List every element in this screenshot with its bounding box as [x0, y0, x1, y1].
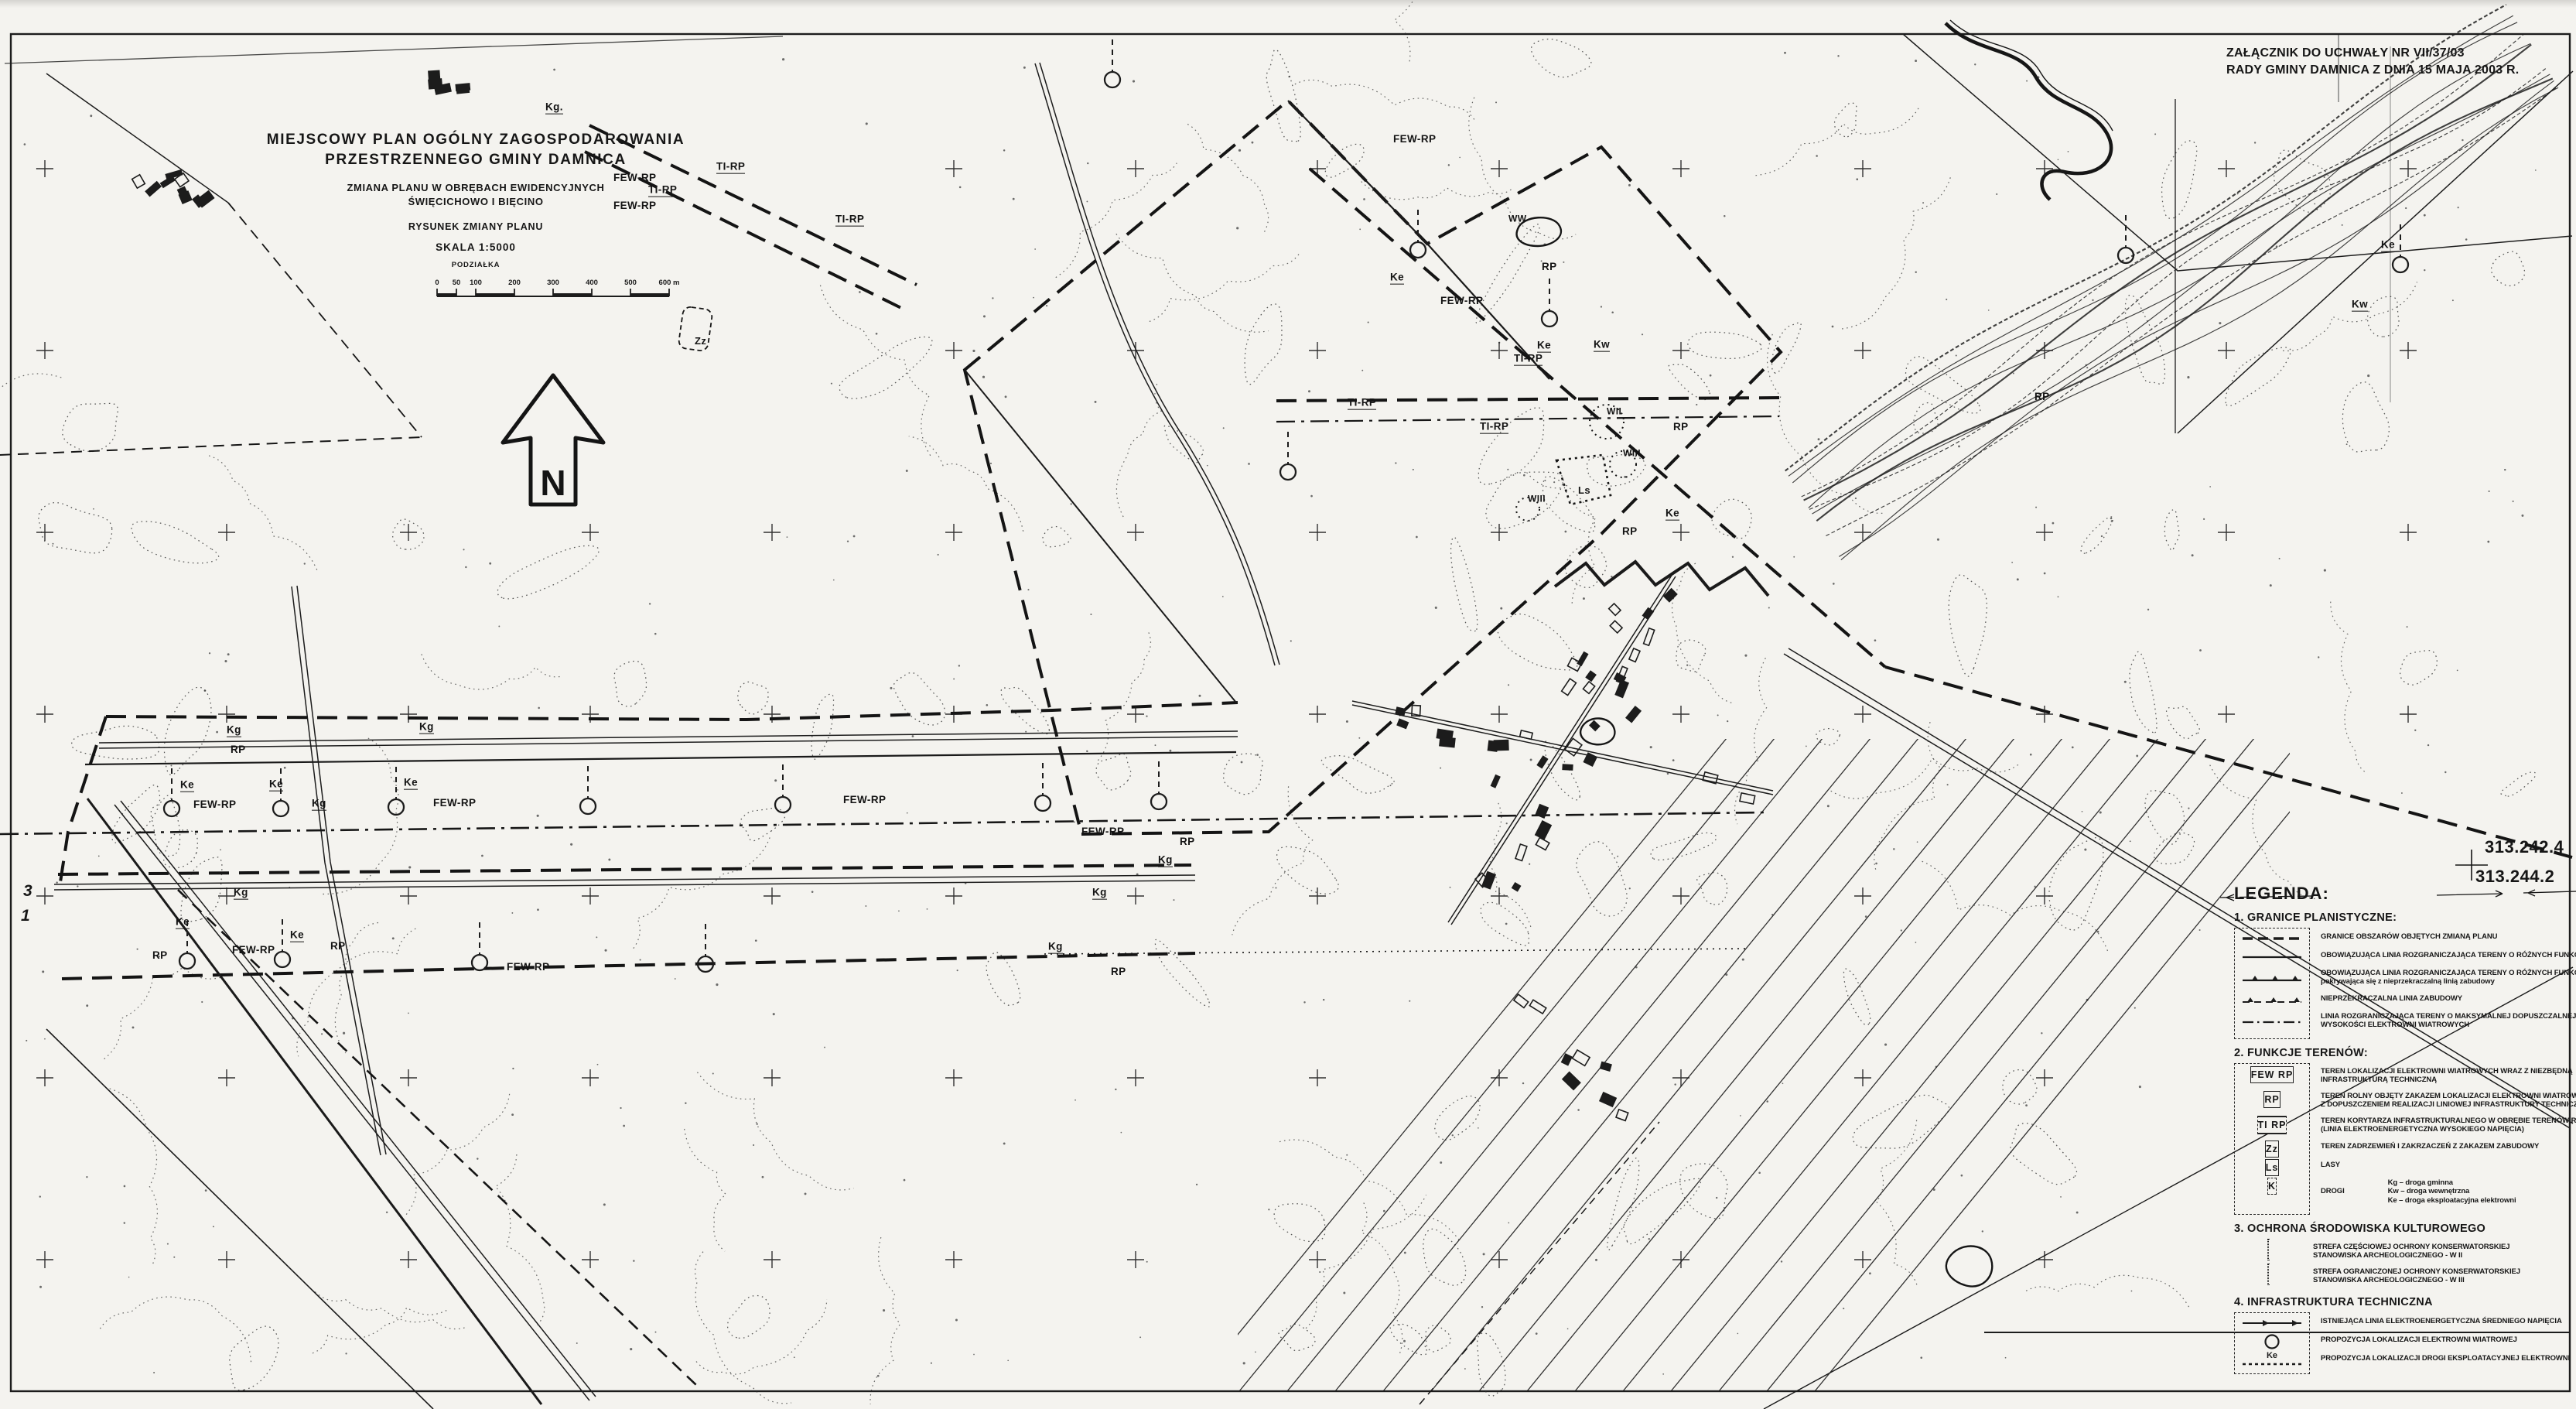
- map-label: Ke: [1390, 272, 1404, 285]
- legend-section-heading: 1. GRANICE PLANISTYCZNE:: [2234, 911, 2574, 924]
- legend-symbol-box: Zz: [2238, 1141, 2306, 1159]
- legend-symbol-box: Ls: [2238, 1159, 2306, 1178]
- coordinate-value-1: 313.242.4: [2485, 837, 2564, 857]
- legend-item-label: TEREN ZADRZEWIEŃ I ZAKRZACZEŃ Z ZAKAZEM …: [2321, 1137, 2576, 1156]
- map-label: Kw: [1594, 339, 1610, 352]
- plan-subtitle-line2: ŚWIĘCICHOWO I BIĘCINO: [190, 195, 762, 209]
- legend-symbol-line-dashdot: [2238, 1011, 2306, 1036]
- map-label: RP: [330, 940, 346, 952]
- legend-item-label: OBOWIĄZUJĄCA LINIA ROZGRANICZAJĄCA TEREN…: [2321, 965, 2576, 990]
- road-code: Ke – droga eksploatacyjna elektrowni: [2388, 1196, 2516, 1206]
- legend-symbol-ke-dash: Ke: [2238, 1353, 2306, 1371]
- legend-symbol-box: FEW RP: [2238, 1066, 2306, 1091]
- map-label: Zz: [695, 335, 706, 347]
- legend-section: 1. GRANICE PLANISTYCZNE:GRANICE OBSZARÓW…: [2234, 911, 2574, 1039]
- map-label: FEW-RP: [507, 961, 549, 973]
- legend-item-label: ISTNIEJĄCA LINIA ELEKTROENERGETYCZNA ŚRE…: [2321, 1312, 2574, 1331]
- map-label: WW: [1508, 213, 1526, 224]
- map-label: Ke: [1537, 340, 1551, 353]
- map-label: RP: [231, 744, 246, 755]
- legend-item-label: OBOWIĄZUJĄCA LINIA ROZGRANICZAJĄCA TEREN…: [2321, 946, 2576, 965]
- svg-text:Ke: Ke: [2267, 1352, 2277, 1360]
- legend-item-label: NIEPRZEKRACZALNA LINIA ZABUDOWY: [2321, 990, 2576, 1008]
- map-label: TI-RP: [1348, 397, 1376, 410]
- legend-item-label: PROPOZYCJA LOKALIZACJI ELEKTROWNI WIATRO…: [2321, 1331, 2574, 1349]
- map-label: FEW-RP: [232, 944, 275, 956]
- legend-section-heading: 2. FUNKCJE TERENÓW:: [2234, 1047, 2574, 1059]
- legend-symbol-box-ti: TI RP: [2238, 1116, 2306, 1141]
- map-label: RP: [152, 949, 168, 961]
- legend-item-label: DROGIKg – droga gminnaKw – droga wewnętr…: [2321, 1175, 2576, 1209]
- legend-item-label: STREFA CZĘŚCIOWEJ OCHRONY KONSERWATORSKI…: [2313, 1239, 2574, 1264]
- road-code: Kg – droga gminna: [2388, 1178, 2516, 1188]
- legend-symbol-line-solid: [2238, 949, 2306, 968]
- drawing-label: RYSUNEK ZMIANY PLANU: [190, 221, 762, 232]
- attachment-line1: ZAŁĄCZNIK DO UCHWAŁY NR VII/37/03: [2226, 45, 2574, 62]
- legend-item-label: LINIA ROZGRANICZAJĄCA TERENY O MAKSYMALN…: [2321, 1008, 2576, 1033]
- map-label: Ke: [290, 929, 304, 942]
- edge-number-bottom: 1: [21, 907, 30, 925]
- map-label: Ke: [176, 916, 190, 929]
- map-label: Kw: [2352, 299, 2368, 312]
- legend-section-heading: 3. OCHRONA ŚRODOWISKA KULTUROWEGO: [2234, 1223, 2574, 1235]
- legend-section: 2. FUNKCJE TERENÓW:FEW RPRPTI RPZzLsKTER…: [2234, 1047, 2574, 1215]
- map-label: Kg: [234, 887, 248, 900]
- edge-number-top: 3: [23, 882, 32, 901]
- legend-symbol-circle: [2238, 1334, 2306, 1353]
- map-label: TI-RP: [1480, 421, 1508, 434]
- map-label: TI-RP: [1514, 353, 1543, 366]
- legend-item-label: TEREN ROLNY OBJĘTY ZAKAZEM LOKALIZACJI E…: [2321, 1088, 2576, 1113]
- map-label: Kg: [1092, 887, 1107, 900]
- map-label: WIII: [1528, 493, 1546, 504]
- map-label: Ke: [269, 778, 283, 792]
- map-label: FEW-RP: [1393, 133, 1436, 145]
- legend-title: LEGENDA:: [2234, 884, 2574, 904]
- map-label: FEW-RP: [193, 799, 236, 810]
- legend-section: 3. OCHRONA ŚRODOWISKA KULTUROWEGOSTREFA …: [2234, 1223, 2574, 1288]
- map-label: RP: [1180, 836, 1195, 847]
- legend-sections: 1. GRANICE PLANISTYCZNE:GRANICE OBSZARÓW…: [2234, 911, 2574, 1374]
- map-label: RP: [1542, 261, 1557, 272]
- legend-symbol-line-arrow: [2238, 1315, 2306, 1334]
- legend-symbol-dots2: [2234, 1264, 2302, 1288]
- legend-section: 4. INFRASTRUKTURA TECHNICZNAKeISTNIEJĄCA…: [2234, 1296, 2574, 1374]
- attachment-line2: RADY GMINY DAMNICA Z DNIA 15 MAJA 2003 R…: [2226, 62, 2574, 79]
- legend-item-label: LASY: [2321, 1156, 2576, 1175]
- map-label: TI-RP: [835, 214, 864, 227]
- legend-item-label: STREFA OGRANICZONEJ OCHRONY KONSERWATORS…: [2313, 1264, 2574, 1288]
- legend-symbol-line-dashbold: [2238, 931, 2306, 949]
- plan-subtitle-line1: ZMIANA PLANU W OBRĘBACH EWIDENCYJNYCH: [190, 181, 762, 195]
- plan-title-line2: PRZESTRZENNEGO GMINY DAMNICA: [190, 150, 762, 170]
- map-label: Ke: [1666, 508, 1679, 521]
- map-label: RP: [2034, 391, 2050, 402]
- legend-symbol-box-k: K: [2238, 1178, 2306, 1212]
- scanned-plan-sheet: 050100200300400500600 m N FEW-RPFEW-RPFE…: [0, 0, 2576, 1409]
- legend-symbol-line-solidtick: [2238, 968, 2306, 993]
- legend-symbol-box: RP: [2238, 1091, 2306, 1116]
- map-label: Kg: [419, 721, 434, 734]
- map-label: RP: [1673, 421, 1689, 433]
- map-label: WII: [1607, 405, 1621, 416]
- map-label: FEW-RP: [433, 797, 476, 809]
- attachment-note: ZAŁĄCZNIK DO UCHWAŁY NR VII/37/03 RADY G…: [2226, 45, 2574, 79]
- map-label: Kg: [1158, 854, 1173, 867]
- legend-symbol-dots: [2234, 1239, 2302, 1264]
- legend-item-label: GRANICE OBSZARÓW OBJĘTYCH ZMIANĄ PLANU: [2321, 928, 2576, 946]
- map-label: FEW-RP: [1440, 295, 1483, 306]
- road-code: Kw – droga wewnętrzna: [2388, 1187, 2516, 1196]
- map-label: Kg: [1048, 941, 1063, 954]
- legend-section-heading: 4. INFRASTRUKTURA TECHNICZNA: [2234, 1296, 2574, 1308]
- plan-title-line1: MIEJSCOWY PLAN OGÓLNY ZAGOSPODAROWANIA: [190, 130, 762, 150]
- map-label: RP: [1111, 966, 1126, 977]
- legend-item-label: PROPOZYCJA LOKALIZACJI DROGI EKSPLOATACY…: [2321, 1349, 2574, 1368]
- legend-symbol-line-tridash: [2238, 993, 2306, 1011]
- map-label: Kg: [312, 798, 326, 811]
- scalebar-label: PODZIAŁKA: [190, 261, 762, 269]
- map-label: Kg: [227, 724, 241, 737]
- legend-item-label: TEREN KORYTARZA INFRASTRUKTURALNEGO W OB…: [2321, 1113, 2576, 1137]
- map-label: FEW-RP: [1081, 826, 1124, 837]
- map-label: Ke: [180, 779, 194, 792]
- legend-item-label: TEREN LOKALIZACJI ELEKTROWNI WIATROWYCH …: [2321, 1063, 2576, 1088]
- map-label: Kg.: [545, 101, 563, 115]
- map-label: Ke: [2381, 239, 2395, 252]
- title-block: MIEJSCOWY PLAN OGÓLNY ZAGOSPODAROWANIA P…: [190, 130, 762, 269]
- map-label: Ke: [404, 777, 418, 790]
- map-label: WIII: [1623, 447, 1641, 458]
- map-label: FEW-RP: [843, 794, 886, 805]
- legend: LEGENDA: 1. GRANICE PLANISTYCZNE:GRANICE…: [2234, 884, 2574, 1382]
- map-label: Ls: [1578, 484, 1590, 496]
- map-label: RP: [1622, 525, 1638, 537]
- scale-label: SKALA 1:5000: [190, 241, 762, 253]
